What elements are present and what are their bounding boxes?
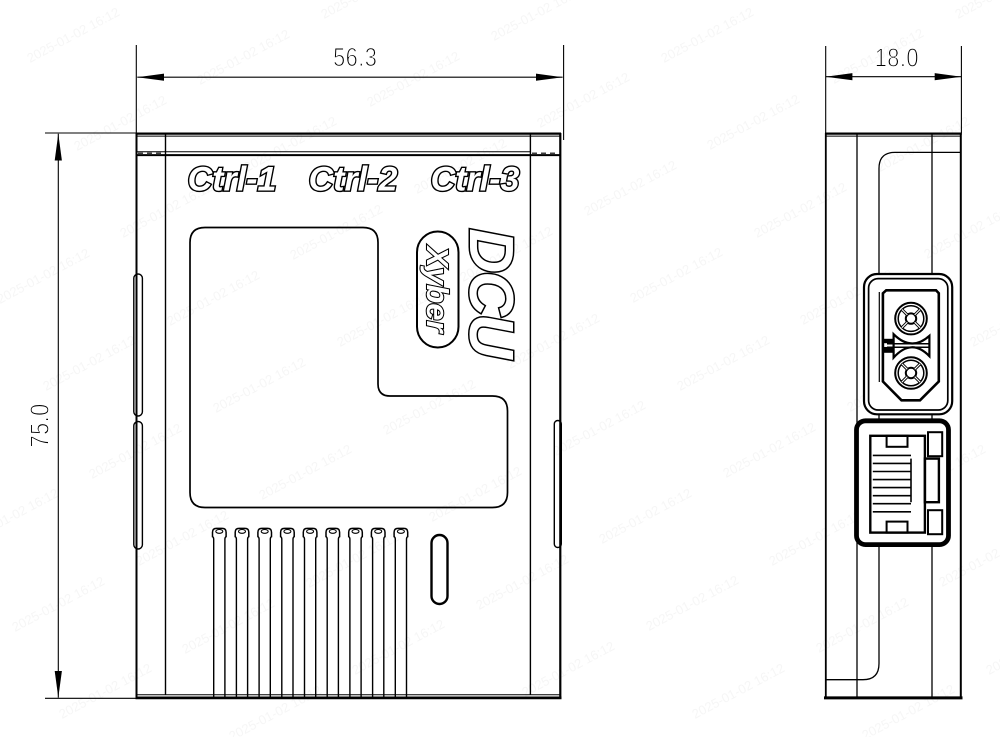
- svg-text:56.3: 56.3: [333, 43, 377, 72]
- svg-text:Ctrl-1: Ctrl-1: [188, 161, 277, 199]
- svg-text:75.0: 75.0: [26, 403, 55, 447]
- svg-text:Xyber: Xyber: [420, 244, 455, 334]
- svg-text:DCU: DCU: [456, 228, 525, 361]
- svg-text:18.0: 18.0: [875, 44, 919, 73]
- svg-text:Ctrl-2: Ctrl-2: [309, 161, 398, 199]
- svg-text:Ctrl-3: Ctrl-3: [431, 161, 520, 199]
